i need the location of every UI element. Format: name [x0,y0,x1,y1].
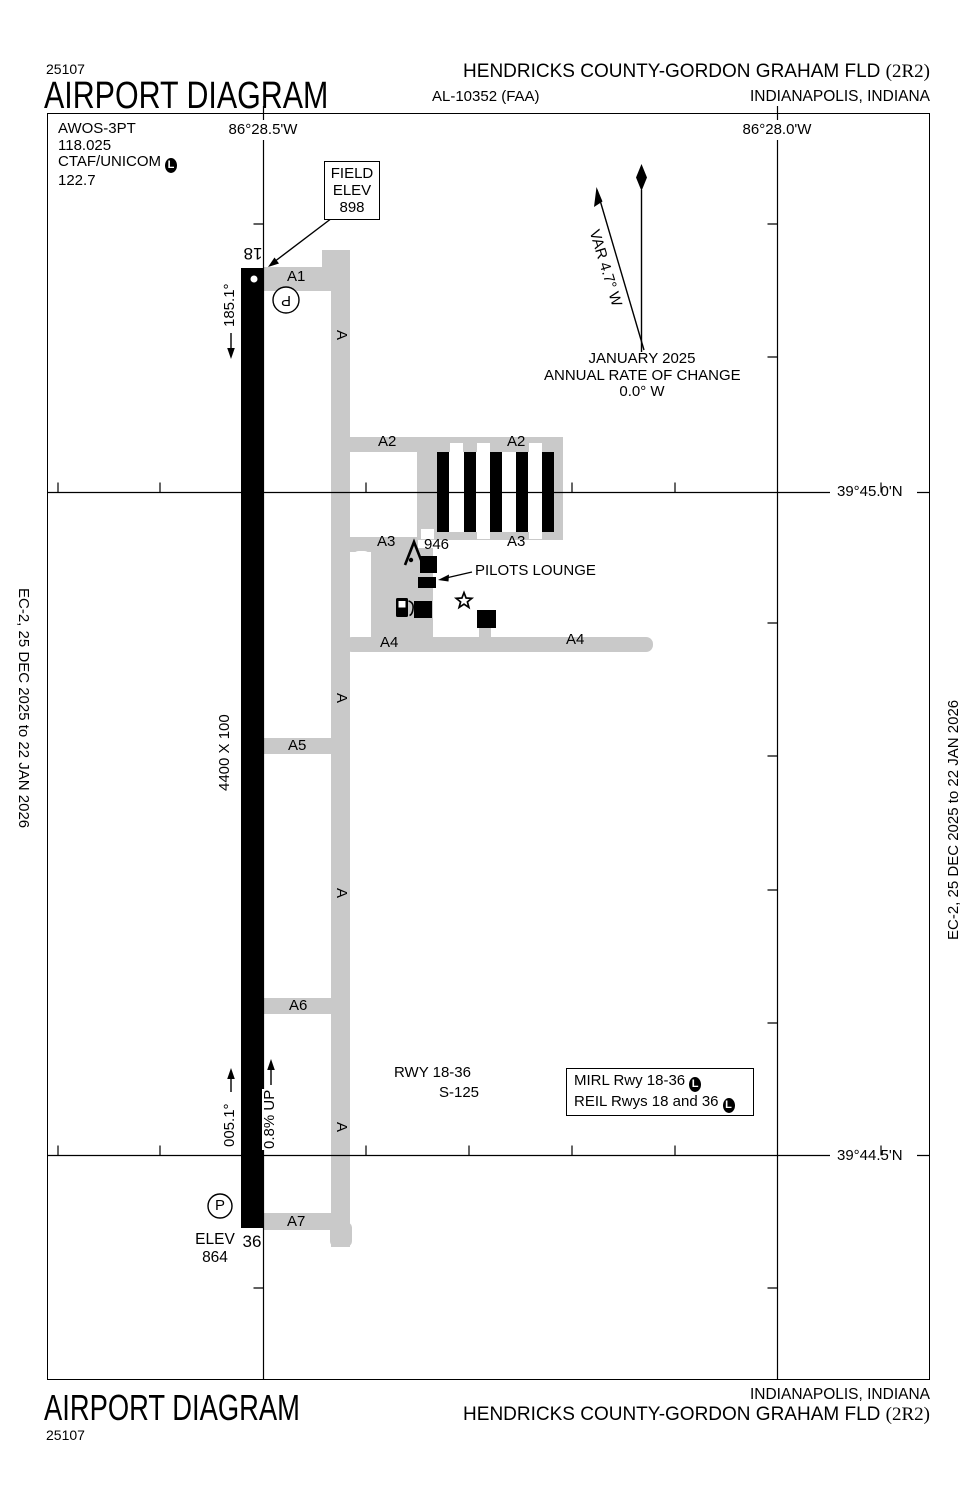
taxiway-label-a2-east: A2 [507,434,525,450]
reil-text: REIL Rwys 18 and 36 [574,1093,719,1110]
footer-city: INDIANAPOLIS, INDIANA [750,1387,930,1403]
taxiway-label-a5: A5 [288,738,306,754]
longitude-label-right: 86°28.0'W [719,122,835,138]
field-elev-line1: FIELD [325,165,379,182]
ctaf-text: CTAF/UNICOM [58,153,161,170]
runway-dimensions: 4400 X 100 [217,713,233,792]
taxiway-label-a7: A7 [287,1214,305,1230]
header-airport-name: HENDRICKS COUNTY-GORDON GRAHAM FLD (2R2) [463,62,930,82]
runway-36-heading: 005.1° [222,1102,238,1148]
runway-36-elevation: ELEV 864 [190,1231,240,1267]
field-elev-line2: ELEV [325,182,379,199]
runway-note-id: RWY 18-36 [394,1065,471,1081]
header-city: INDIANAPOLIS, INDIANA [750,89,930,105]
awos-freq: 118.025 [58,138,177,155]
taxiway-label-a4-west: A4 [380,635,398,651]
latitude-label-bottom: 39°44.5'N [837,1148,903,1164]
awos-label: AWOS-3PT [58,121,177,138]
comms-block: AWOS-3PT 118.025 CTAF/UNICOML 122.7 [58,121,177,190]
mirl-text: MIRL Rwy 18-36 [574,1072,685,1089]
ctaf-freq: 122.7 [58,173,177,190]
pilots-lounge-label: PILOTS LOUNGE [475,563,596,579]
lighted-badge-icon: L [165,158,177,173]
taxiway-label-a-2: A [333,693,349,703]
ctaf-label: CTAF/UNICOML [58,154,177,173]
taxiway-label-a3-east: A3 [507,534,525,550]
taxiway-label-a-3: A [333,888,349,898]
elev-label: ELEV [190,1231,240,1249]
lighting-box: MIRL Rwy 18-36L REIL Rwys 18 and 36L [566,1068,754,1116]
runway-slope-label: 0.8% UP [262,1089,278,1150]
footer-airport-name: HENDRICKS COUNTY-GORDON GRAHAM FLD (2R2) [463,1405,930,1425]
airport-name-text: HENDRICKS COUNTY-GORDON GRAHAM FLD [463,1404,880,1425]
taxiway-label-a2-west: A2 [378,434,396,450]
variation-date: JANUARY 2025 [544,351,740,368]
taxiway-label-a-4: A [333,1122,349,1132]
longitude-label-left: 86°28.5'W [205,122,321,138]
elev-value: 864 [190,1249,240,1267]
beacon-elevation-label: 946 [424,537,449,553]
runway-18-number: 18 [242,244,264,262]
lighting-line2: REIL Rwys 18 and 36L [574,1092,746,1113]
page-title: AIRPORT DIAGRAM [44,77,328,115]
taxiway-label-a-1: A [333,330,349,340]
latitude-label-top: 39°45.0'N [837,484,903,500]
runway-note-strength: S-125 [439,1085,479,1101]
airport-id-text: (2R2) [886,61,930,82]
airport-id-text: (2R2) [886,1404,930,1425]
runway-18-heading: 185.1° [222,282,238,328]
taxiway-label-a6: A6 [289,998,307,1014]
field-elev-value: 898 [325,199,379,216]
lighting-line1: MIRL Rwy 18-36L [574,1071,746,1092]
chart-border [47,113,930,1380]
field-elev-box: FIELD ELEV 898 [324,161,380,220]
sidebar-right-effective-dates: EC-2, 25 DEC 2025 to 22 JAN 2026 [946,700,962,940]
rate-of-change-label: ANNUAL RATE OF CHANGE [544,368,740,385]
lighted-badge-icon: L [689,1077,701,1092]
airport-diagram-sheet: 25107 AIRPORT DIAGRAM HENDRICKS COUNTY-G… [0,0,978,1500]
runway-36-number: 36 [240,1233,264,1251]
airport-name-text: HENDRICKS COUNTY-GORDON GRAHAM FLD [463,61,880,82]
header-procedure-id: AL-10352 (FAA) [432,89,540,105]
taxiway-label-a1: A1 [287,269,305,285]
footer-chart-code: 25107 [46,1428,85,1443]
rate-of-change-value: 0.0° W [544,384,740,401]
taxiway-label-a3-west: A3 [377,534,395,550]
footer-title: AIRPORT DIAGRAM [44,1390,300,1426]
marker-letter-rwy18: P [279,292,293,308]
taxiway-label-a4-east: A4 [566,632,584,648]
lighted-badge-icon: L [723,1098,735,1113]
marker-letter-rwy36: P [213,1198,227,1214]
annual-rate-block: JANUARY 2025 ANNUAL RATE OF CHANGE 0.0° … [544,351,740,401]
sidebar-left-effective-dates: EC-2, 25 DEC 2025 to 22 JAN 2026 [15,588,31,828]
